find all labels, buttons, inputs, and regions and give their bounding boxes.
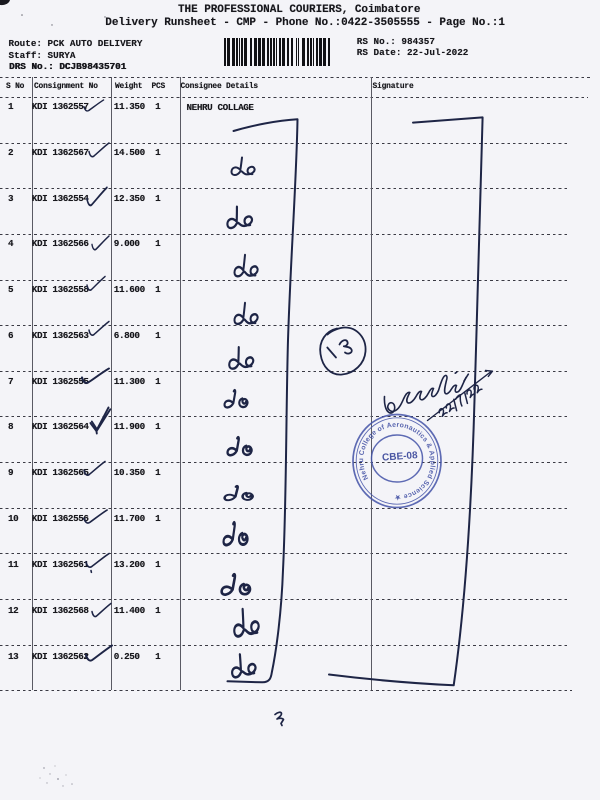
svg-text:CBE-08: CBE-08 [382,450,419,463]
